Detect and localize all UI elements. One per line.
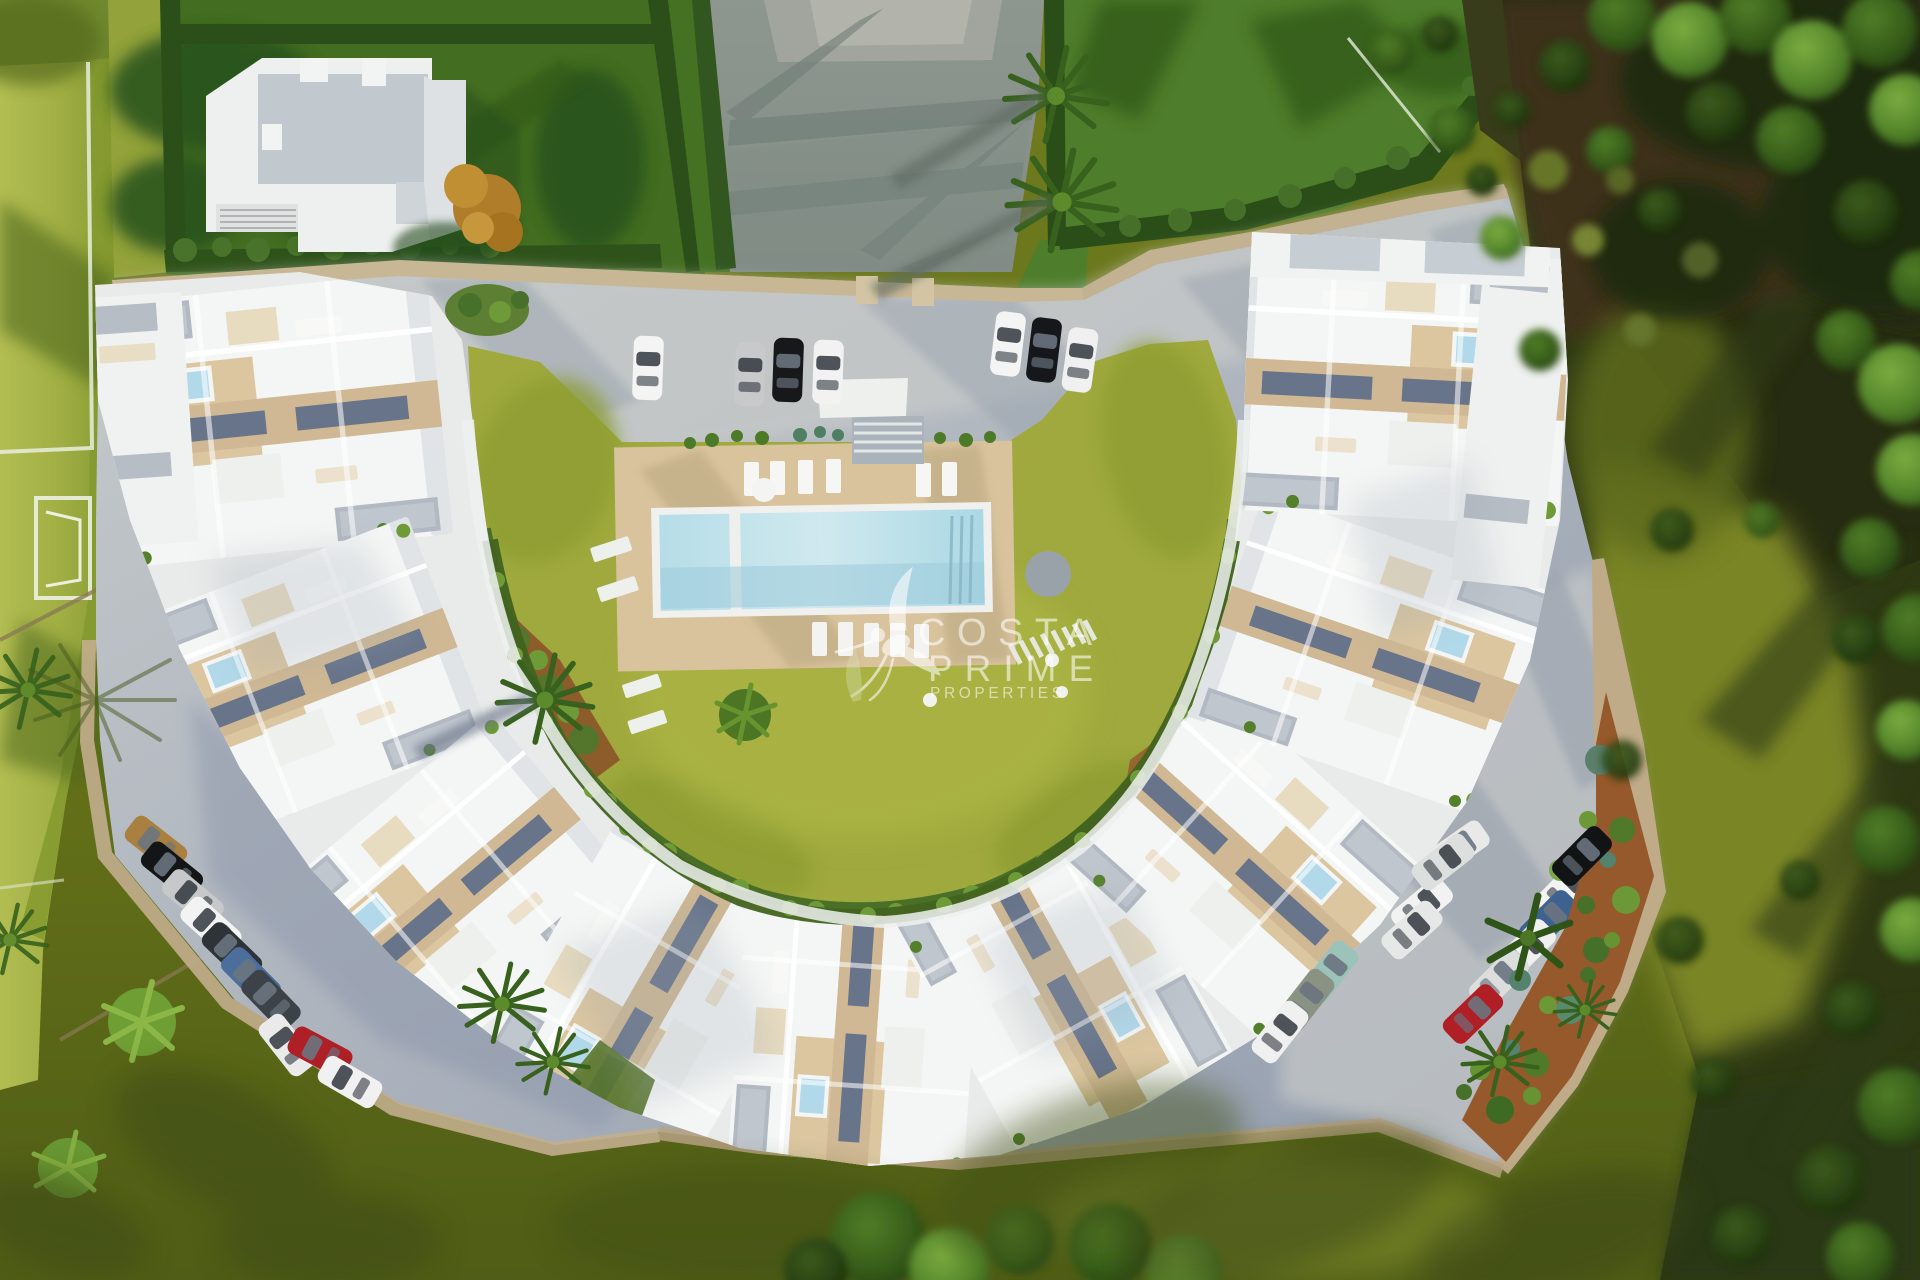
svg-text:PRIME: PRIME xyxy=(928,648,1105,689)
svg-text:PROPERTIES: PROPERTIES xyxy=(930,685,1066,702)
